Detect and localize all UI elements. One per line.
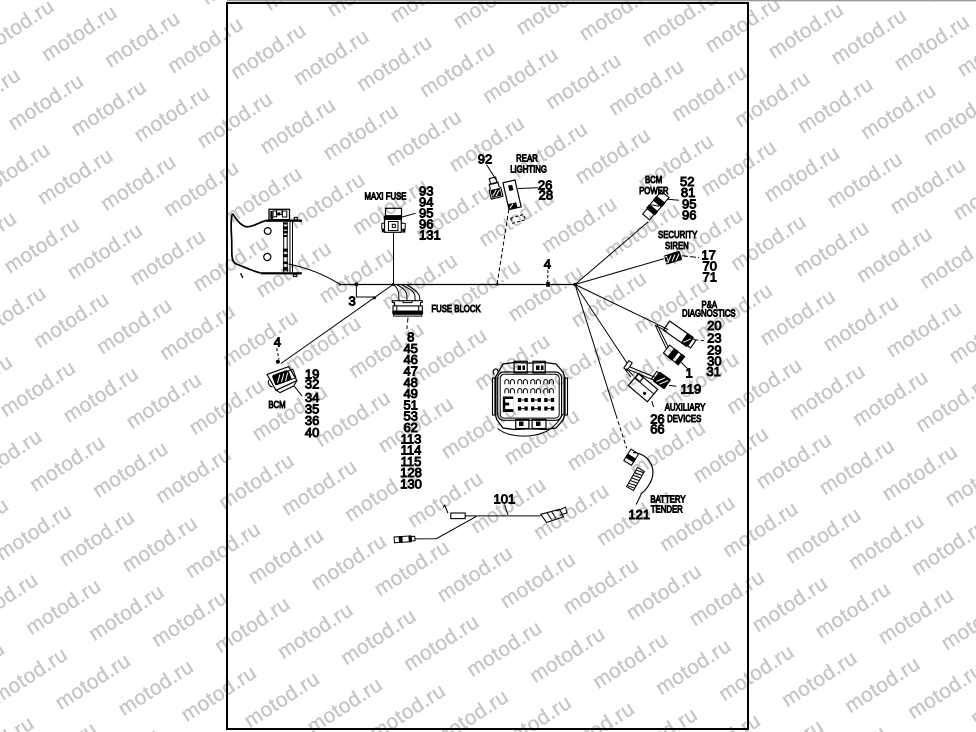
- svg-text:28: 28: [539, 187, 553, 202]
- svg-text:1: 1: [686, 366, 693, 381]
- svg-text:31: 31: [706, 364, 720, 379]
- svg-text:FUSE BLOCK: FUSE BLOCK: [431, 303, 480, 314]
- svg-text:SIREN: SIREN: [665, 240, 689, 251]
- svg-text:66: 66: [650, 421, 664, 436]
- svg-text:BCM: BCM: [645, 174, 662, 185]
- svg-text:TENDER: TENDER: [651, 504, 683, 515]
- svg-text:96: 96: [682, 208, 696, 223]
- svg-text:DIAGNOSTICS: DIAGNOSTICS: [682, 308, 736, 319]
- svg-text:LIGHTING: LIGHTING: [510, 164, 547, 175]
- svg-text:40: 40: [305, 425, 319, 440]
- svg-text:3: 3: [349, 294, 356, 309]
- svg-text:AUXILIARY: AUXILIARY: [665, 401, 706, 412]
- svg-text:119: 119: [681, 382, 702, 397]
- svg-text:131: 131: [419, 227, 441, 242]
- svg-text:motod.ru: motod.ru: [0, 712, 38, 732]
- svg-text:101: 101: [494, 491, 516, 506]
- svg-text:71: 71: [703, 270, 717, 285]
- svg-text:REAR: REAR: [516, 153, 538, 164]
- svg-text:DEVICES: DEVICES: [667, 413, 701, 424]
- svg-text:SECURITY: SECURITY: [658, 229, 697, 240]
- svg-text:POWER: POWER: [639, 185, 669, 196]
- svg-text:4: 4: [274, 335, 281, 350]
- svg-text:121: 121: [628, 507, 650, 522]
- svg-text:MAXI FUSE: MAXI FUSE: [365, 191, 407, 202]
- svg-text:BCM: BCM: [268, 399, 285, 410]
- svg-text:4: 4: [544, 256, 551, 271]
- svg-text:92: 92: [478, 152, 492, 167]
- svg-text:130: 130: [400, 477, 422, 492]
